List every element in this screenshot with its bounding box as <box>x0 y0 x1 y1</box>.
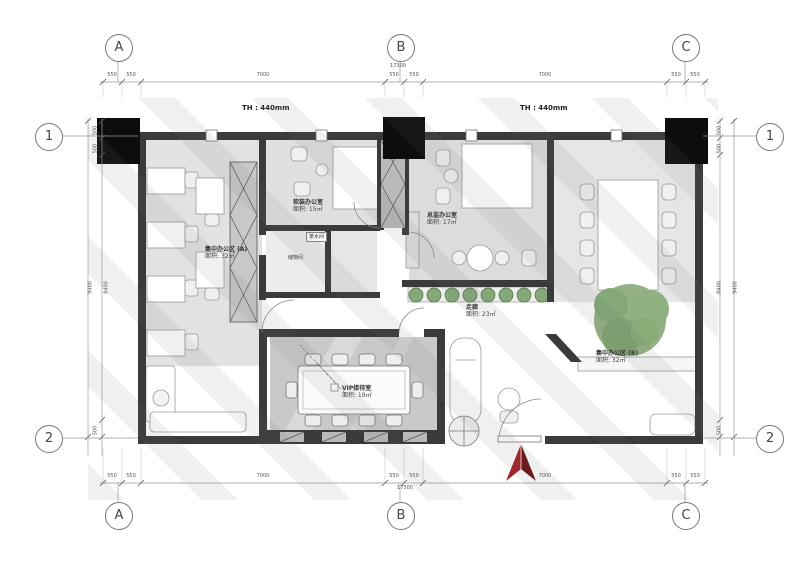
room-label-soft-office: 软装办公室 面积: 15㎡ <box>293 199 323 213</box>
room-area: 面积: 15㎡ <box>293 206 323 213</box>
room-label-vip: VIP接待室 面积: 19㎡ <box>342 385 372 399</box>
storage-label: 储物间 <box>288 255 303 261</box>
grid-bubble-1-right: 1 <box>756 123 784 151</box>
room-name: 走廊 <box>466 304 496 311</box>
dim-top-total: 17300 <box>383 64 413 69</box>
dim-left-2: 500 <box>94 134 99 164</box>
th-annotation-left: TH : 440mm <box>242 104 290 112</box>
dim-left-total: 9400 <box>89 273 94 303</box>
room-area: 面积: 19㎡ <box>342 392 372 399</box>
dim-right-4: 500 <box>718 416 723 446</box>
room-label-director: 总监办公室 面积: 17㎡ <box>427 212 457 226</box>
planter-row <box>408 287 549 302</box>
dim-right-3: 8400 <box>718 273 723 303</box>
room-name: 总监办公室 <box>427 212 457 219</box>
grid-bubble-2-left: 2 <box>35 425 63 453</box>
tea-room-label: 茶水间 <box>306 232 327 242</box>
grid-bubble-c-bottom: C <box>672 502 700 530</box>
dim-bottom-total: 17300 <box>390 486 420 491</box>
floor-plan-drawing <box>0 0 800 565</box>
dim-top-6: 7000 <box>530 73 560 78</box>
grid-bubble-1-left: 1 <box>35 123 63 151</box>
grid-bubble-c-top: C <box>672 34 700 62</box>
dim-right-total: 9400 <box>734 273 739 303</box>
dim-left-4: 500 <box>94 416 99 446</box>
grid-bubble-a-bottom: A <box>105 502 133 530</box>
tree <box>594 284 669 356</box>
grid-bubble-b-top: B <box>387 34 415 62</box>
dim-top-5: 550 <box>399 73 429 78</box>
grid-bubble-b-bottom: B <box>387 502 415 530</box>
floor-plan-canvas: A B C A B C 1 2 1 2 550 550 7000 550 550… <box>0 0 800 565</box>
room-name: VIP接待室 <box>342 385 372 392</box>
dim-top-2: 550 <box>116 73 146 78</box>
room-label-corridor: 走廊 面积: 23㎡ <box>466 304 496 318</box>
room-area: 面积: 32㎡ <box>205 253 247 260</box>
room-label-office-b: 集中办公区 (B) 面积: 32㎡ <box>596 350 638 364</box>
room-name: 集中办公区 (B) <box>596 350 638 357</box>
room-name: 集中办公区 (A) <box>205 246 247 253</box>
dim-left-3: 8400 <box>105 273 110 303</box>
room-name: 软装办公室 <box>293 199 323 206</box>
dim-top-3: 7000 <box>248 73 278 78</box>
dim-bottom-3: 7000 <box>248 474 278 479</box>
room-area: 面积: 23㎡ <box>466 311 496 318</box>
grid-bubble-a-top: A <box>105 34 133 62</box>
room-area: 面积: 17㎡ <box>427 219 457 226</box>
dim-bottom-2: 550 <box>116 474 146 479</box>
dim-bottom-5: 550 <box>399 474 429 479</box>
room-area: 面积: 32㎡ <box>596 357 638 364</box>
dim-top-8: 550 <box>680 73 710 78</box>
room-label-office-a: 集中办公区 (A) 面积: 32㎡ <box>205 246 247 260</box>
grid-bubble-2-right: 2 <box>756 425 784 453</box>
th-annotation-right: TH : 440mm <box>520 104 568 112</box>
dim-right-2: 500 <box>718 134 723 164</box>
dim-bottom-8: 550 <box>680 474 710 479</box>
dim-bottom-6: 7000 <box>530 474 560 479</box>
